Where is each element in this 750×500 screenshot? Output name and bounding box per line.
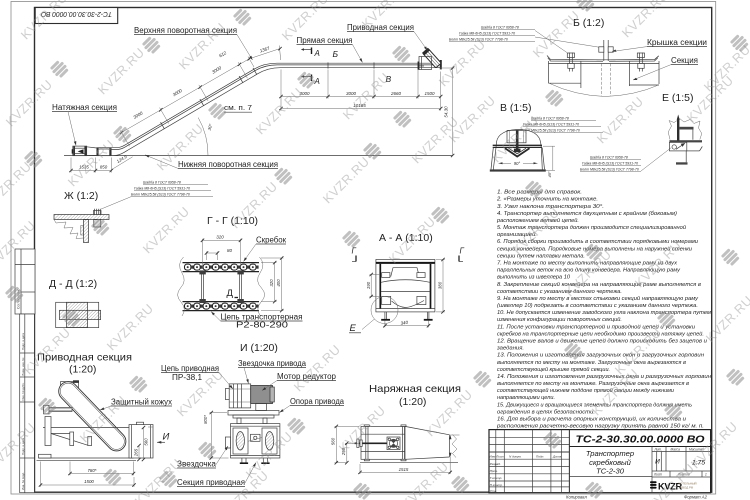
svg-text:Формат А2: Формат А2 bbox=[684, 494, 708, 499]
svg-text:2660: 2660 bbox=[390, 91, 402, 96]
svg-text:выполняется по месту на монтаж: выполняется по месту на монтаже. Разгруз… bbox=[497, 381, 689, 387]
svg-text:И: И bbox=[655, 459, 660, 466]
svg-text:ТС-2-30: ТС-2-30 bbox=[596, 466, 625, 475]
svg-text:ограждения в целях безопасност: ограждения в целях безопасности. bbox=[497, 409, 595, 415]
svg-text:265: 265 bbox=[134, 448, 139, 457]
svg-text:Шайба 8 ГОСТ 6958-78: Шайба 8 ГОСТ 6958-78 bbox=[143, 181, 181, 185]
svg-text:соответствии с указанием данно: соответствии с указанием данного чертежа… bbox=[497, 289, 622, 295]
svg-text:Пров.: Пров. bbox=[490, 469, 498, 473]
svg-text:90°: 90° bbox=[514, 161, 521, 166]
svg-text:Подп. и дата: Подп. и дата bbox=[21, 333, 25, 350]
svg-text:расположения расчетно-весовую: расположения расчетно-весовую нагрузку п… bbox=[496, 423, 704, 430]
svg-text:13. Положения и изготовления з: 13. Положения и изготовления загрузочных… bbox=[497, 353, 704, 359]
svg-text:Наряжная секция: Наряжная секция bbox=[369, 383, 461, 395]
svg-text:Д - Д (1:2): Д - Д (1:2) bbox=[49, 278, 97, 290]
svg-text:см. п. 7: см. п. 7 bbox=[224, 103, 252, 112]
svg-text:1: 1 bbox=[705, 473, 707, 477]
svg-text:Крышка секции: Крышка секции bbox=[647, 38, 707, 47]
svg-text:Нижняя поворотная секция: Нижняя поворотная секция bbox=[178, 160, 278, 169]
svg-text:780*: 780* bbox=[87, 468, 96, 473]
svg-text:Разраб.: Разраб. bbox=[490, 462, 501, 466]
svg-text:Звездочка привода: Звездочка привода bbox=[238, 359, 307, 368]
svg-text:Скребок: Скребок bbox=[256, 236, 287, 245]
svg-text:Г: Г bbox=[460, 247, 465, 256]
svg-text:10. Не допускается изменение з: 10. Не допускается изменение заводского … bbox=[497, 310, 711, 316]
svg-text:1500: 1500 bbox=[84, 479, 94, 484]
svg-text:Инв. № подл.: Инв. № подл. bbox=[21, 472, 25, 490]
svg-text:1515: 1515 bbox=[399, 467, 409, 472]
svg-text:12. Вращение валов и движение: 12. Вращение валов и движение цепей долж… bbox=[497, 338, 707, 345]
svg-text:ТС-2-30.30.00.0000 ВО: ТС-2-30.30.00.0000 ВО bbox=[576, 434, 705, 446]
svg-text:400: 400 bbox=[276, 279, 281, 287]
svg-text:Лит.: Лит. bbox=[654, 447, 663, 451]
svg-text:14. Положения и изготовления: 14. Положения и изготовления разгрузочны… bbox=[497, 374, 711, 380]
svg-text:560: 560 bbox=[144, 438, 149, 446]
svg-text:Шайба 8 ГОСТ 6958-78: Шайба 8 ГОСТ 6958-78 bbox=[590, 156, 628, 160]
svg-text:2. «Размеры уточнить на монта: 2. «Размеры уточнить на монтаже. bbox=[496, 197, 598, 203]
svg-text:(швеллер 10) подрезать в соотв: (швеллер 10) подрезать в соответствии с … bbox=[497, 303, 698, 309]
svg-text:скребков на транспортерные цеп: скребков на транспортерные цепи необходи… bbox=[497, 330, 704, 337]
svg-text:Утв.: Утв. bbox=[490, 489, 497, 493]
svg-text:Инв. № дубл.: Инв. № дубл. bbox=[21, 382, 25, 400]
svg-text:Гайка М8-6Н5 (S13) ГОСТ 5931: Гайка М8-6Н5 (S13) ГОСТ 5931-70 bbox=[134, 187, 190, 191]
svg-text:320: 320 bbox=[269, 279, 274, 287]
svg-text:направляющими цепи.: направляющими цепи. bbox=[497, 395, 555, 401]
svg-text:4. Транспортер выполняется дв: 4. Транспортер выполняется двухцепным с … bbox=[497, 210, 677, 217]
svg-text:Гайка М8-6Н5 (S13) ГОСТ 5931: Гайка М8-6Н5 (S13) ГОСТ 5931-70 bbox=[582, 162, 638, 166]
svg-text:И (1:20): И (1:20) bbox=[240, 342, 278, 354]
svg-text:Приводная секция: Приводная секция bbox=[347, 23, 414, 32]
svg-text:Лист: Лист bbox=[653, 473, 663, 477]
svg-text:Е (1:5): Е (1:5) bbox=[662, 92, 694, 104]
svg-text:Г: Г bbox=[352, 247, 357, 256]
svg-text:соответствующей крышке прямой: соответствующей крышке прямой секции. bbox=[497, 366, 610, 373]
svg-text:секции путем наплавки метала.: секции путем наплавки метала. bbox=[497, 253, 585, 259]
svg-text:Шайба 8 ГОСТ 6958-78: Шайба 8 ГОСТ 6958-78 bbox=[481, 26, 519, 30]
svg-text:Транспортер: Транспортер bbox=[586, 449, 634, 458]
svg-text:Болт М8х25.58 (S13) ГОСТ 779: Болт М8х25.58 (S13) ГОСТ 7798-70 bbox=[580, 168, 639, 172]
svg-text:800*: 800* bbox=[203, 415, 208, 424]
svg-text:560: 560 bbox=[331, 437, 336, 445]
svg-text:Копировал: Копировал bbox=[566, 495, 587, 500]
svg-text:Секция приводная: Секция приводная bbox=[177, 478, 245, 487]
svg-text:изменения конфигурации поворот: изменения конфигурации поворотных секций… bbox=[497, 316, 622, 323]
svg-text:8. Закрепление секций конвейе: 8. Закрепление секций конвейера на напра… bbox=[497, 281, 701, 288]
svg-text:1500: 1500 bbox=[424, 91, 435, 96]
svg-text:(1:20): (1:20) bbox=[69, 364, 96, 376]
svg-text:N докум.: N докум. bbox=[509, 455, 522, 459]
svg-text:Д: Д bbox=[227, 288, 234, 299]
svg-text:Прямая секция: Прямая секция bbox=[297, 36, 353, 45]
svg-text:Е: Е bbox=[350, 323, 357, 334]
svg-text:45°: 45° bbox=[547, 171, 552, 177]
svg-text:Натяжная секция: Натяжная секция bbox=[52, 103, 117, 112]
svg-text:заедания.: заедания. bbox=[496, 346, 524, 352]
svg-text:А: А bbox=[314, 49, 320, 58]
svg-text:850: 850 bbox=[100, 165, 108, 170]
svg-text:Масса: Масса bbox=[671, 447, 681, 451]
svg-text:ПР-38,1: ПР-38,1 bbox=[172, 373, 202, 382]
svg-text:выполняется по месту на монтаж: выполняется по месту на монтаже. Загрузо… bbox=[497, 360, 686, 366]
svg-text:соответствующей нижнем поддоне: соответствующей нижнем поддоне прямой се… bbox=[497, 387, 674, 394]
svg-text:В (1:5): В (1:5) bbox=[500, 102, 532, 114]
svg-text:9. На монтаже по месту в мест: 9. На монтаже по месту в местах стыковки… bbox=[497, 295, 698, 302]
svg-text:190: 190 bbox=[366, 281, 371, 289]
svg-text:Опора привода: Опора привода bbox=[290, 397, 345, 406]
svg-text:80: 80 bbox=[227, 248, 233, 253]
svg-text:Т.контр.: Т.контр. bbox=[490, 476, 503, 480]
svg-text:Подп.: Подп. bbox=[536, 455, 544, 459]
svg-text:Секция: Секция bbox=[671, 56, 698, 65]
svg-text:Ж (1:2): Ж (1:2) bbox=[64, 190, 98, 202]
svg-text:Дата: Дата bbox=[552, 455, 561, 459]
svg-text:320: 320 bbox=[216, 234, 224, 239]
svg-text:(1:20): (1:20) bbox=[399, 396, 426, 408]
svg-text:И: И bbox=[163, 432, 170, 443]
svg-text:Изм Лист: Изм Лист bbox=[490, 455, 505, 459]
svg-text:Гайка М8-6Н5 (S13) ГОСТ 5931: Гайка М8-6Н5 (S13) ГОСТ 5931-70 bbox=[459, 32, 515, 36]
svg-text:Болт М8х25.58 (S13) ГОСТ 779: Болт М8х25.58 (S13) ГОСТ 7798-70 bbox=[131, 193, 190, 197]
svg-text:выполнить из швеллера 10: выполнить из швеллера 10 bbox=[497, 275, 570, 281]
svg-text:16. Для выбора и расчета опор: 16. Для выбора и расчета опорных констру… bbox=[497, 416, 686, 423]
svg-text:Р2-80-290: Р2-80-290 bbox=[236, 321, 289, 330]
svg-text:380: 380 bbox=[438, 281, 443, 289]
svg-text:Н.контр.: Н.контр. bbox=[490, 483, 503, 487]
svg-text:Б: Б bbox=[333, 49, 339, 59]
